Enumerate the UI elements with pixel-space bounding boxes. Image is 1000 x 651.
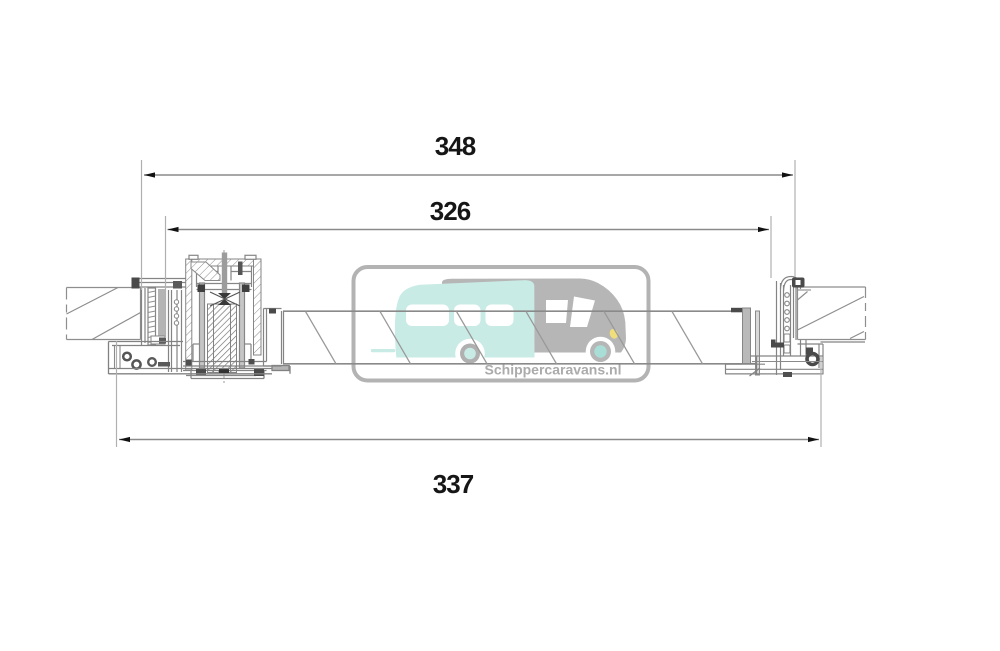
svg-text:337: 337 <box>433 469 474 499</box>
svg-text:348: 348 <box>435 131 476 161</box>
svg-text:326: 326 <box>430 196 471 226</box>
